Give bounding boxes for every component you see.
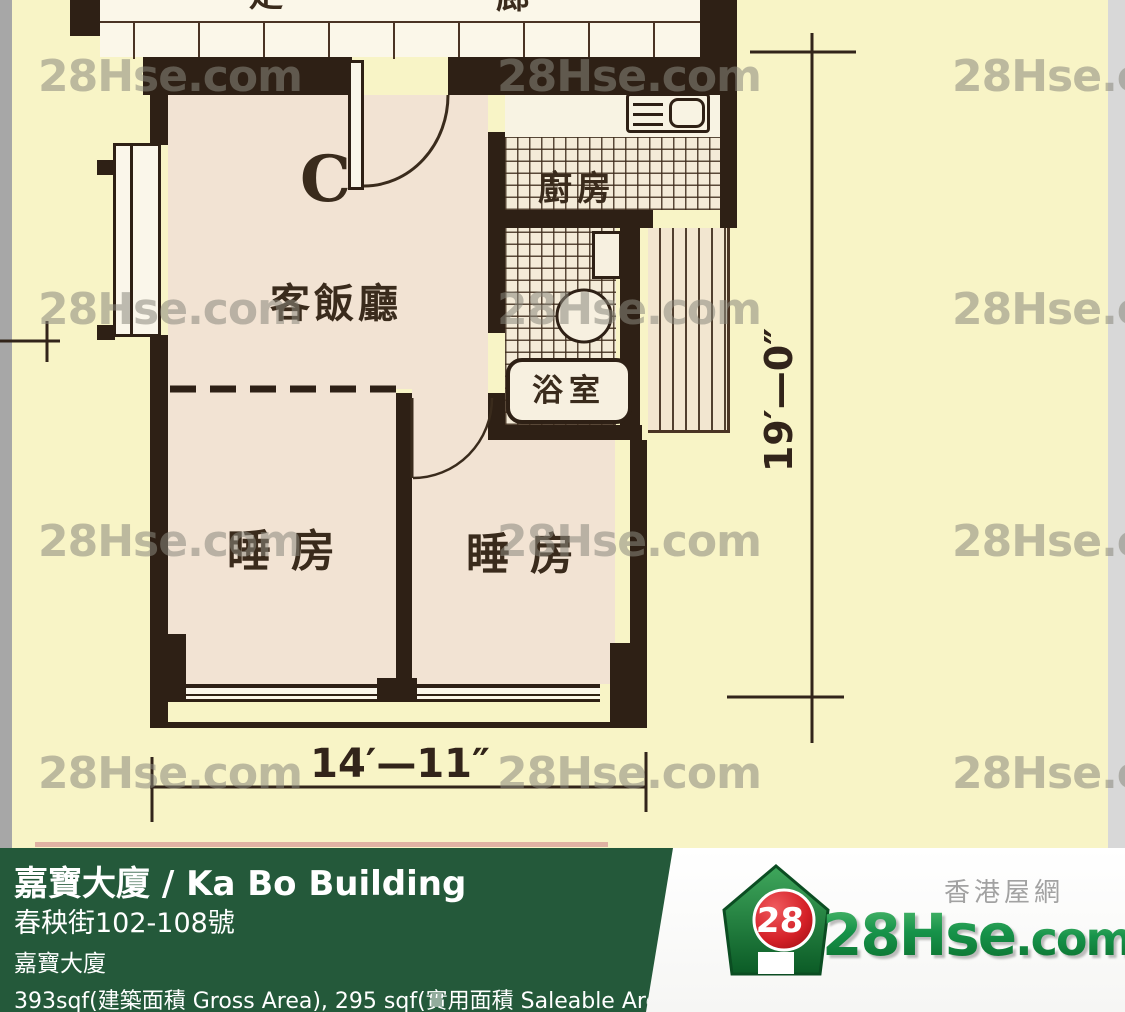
unit-label: C xyxy=(300,148,351,212)
logo-house-icon: 28 xyxy=(718,862,834,982)
watermark: 28Hse.com xyxy=(952,288,1125,332)
watermark: 28Hse.com xyxy=(38,288,302,332)
living-room xyxy=(168,95,488,389)
sink-drainboard-icon xyxy=(633,100,663,126)
toilet-cistern xyxy=(592,231,622,279)
watermark: 28Hse.com xyxy=(38,752,302,796)
wall xyxy=(610,643,647,727)
building-address: 春秧街102-108號 xyxy=(14,901,235,940)
building-title: 嘉寶大廈 / Ka Bo Building xyxy=(14,856,466,905)
watermark: 28Hse.com xyxy=(952,520,1125,564)
wall xyxy=(720,95,737,228)
watermark: 28Hse.com xyxy=(952,752,1125,796)
bottom-window-left xyxy=(186,684,377,702)
corridor-label-right: 廊 xyxy=(496,0,530,14)
bathroom-label-box: 浴室 xyxy=(506,358,632,424)
wall xyxy=(377,678,417,702)
wall xyxy=(70,0,100,36)
wall xyxy=(150,335,168,634)
watermark: 28Hse.com xyxy=(497,520,761,564)
scan-artifact-line xyxy=(35,842,608,847)
watermark: 28Hse.com xyxy=(38,55,302,99)
watermark: 28Hse.com xyxy=(497,55,761,99)
building-area: 393sqf(建築面積 Gross Area), 295 sqf(實用面積 Sa… xyxy=(14,983,681,1012)
bottom-window-right xyxy=(417,684,600,702)
wall xyxy=(488,425,642,440)
sink-basin-icon xyxy=(669,98,705,128)
wall xyxy=(150,634,186,702)
watermark: 28Hse.com xyxy=(497,752,761,796)
wall xyxy=(488,210,653,228)
wall xyxy=(488,132,505,213)
dimension-height-label: 19′—0″ xyxy=(760,312,804,488)
logo-badge: 28 xyxy=(755,901,805,941)
logo-tagline: 香港屋網 xyxy=(944,872,1064,909)
watermark: 28Hse.com xyxy=(952,55,1125,99)
logo-site-text: 28Hse.com xyxy=(822,906,1125,964)
corridor xyxy=(100,0,722,57)
corridor-label-left: 走 xyxy=(249,0,283,12)
right-edge-strip xyxy=(1108,0,1125,848)
left-edge-strip xyxy=(0,0,12,848)
building-name: 嘉寶大廈 xyxy=(14,944,106,978)
watermark: 28Hse.com xyxy=(497,288,761,332)
room-label-kitchen: 廚房 xyxy=(538,172,616,206)
wall xyxy=(396,393,412,684)
logo-site-suffix: .com xyxy=(1015,912,1125,966)
room-label-bathroom: 浴室 xyxy=(532,376,606,407)
wall xyxy=(700,0,737,57)
floor-plan-page: 走 廊 浴室 xyxy=(0,0,1125,1012)
dimension-width-label: 14′—11″ xyxy=(275,744,525,788)
logo-site-main: 28Hse xyxy=(822,901,1015,969)
ledge-bottom-line xyxy=(150,722,647,728)
watermark: 28Hse.com xyxy=(38,520,302,564)
